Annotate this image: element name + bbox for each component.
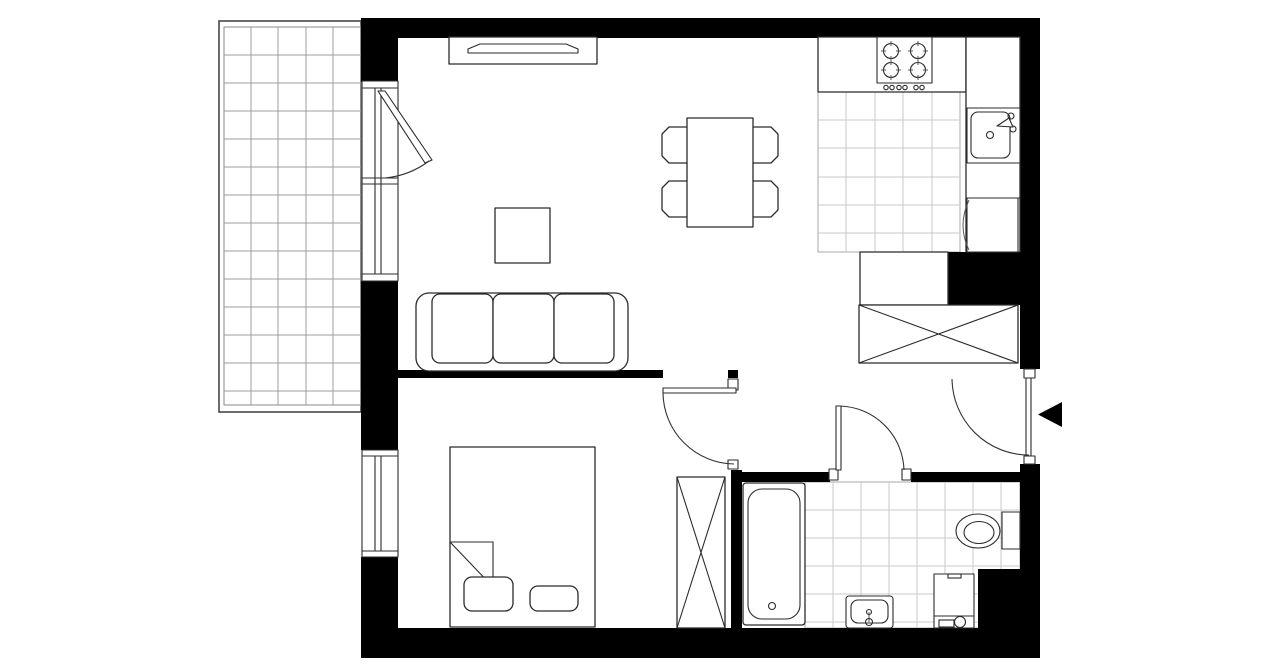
wall-kitchen-block — [948, 252, 1020, 305]
bathroom-door-jamb-left — [829, 469, 838, 480]
floor-plan-page — [0, 0, 1280, 667]
bed-pillow-1 — [464, 577, 513, 611]
bedroom-door-swing — [663, 393, 734, 464]
wall-bedroom-bathroom — [731, 470, 742, 628]
toilet-tank — [1002, 512, 1020, 549]
wall-bathroom-top-left — [742, 472, 830, 482]
fridge — [967, 198, 1018, 252]
entry-door-jamb-top — [1024, 369, 1035, 378]
wall-bottom — [361, 628, 1040, 658]
wall-left-upper — [361, 18, 398, 82]
entry-door-jamb-bottom — [1024, 456, 1035, 464]
entry-door-swing — [952, 379, 1029, 455]
dining-chair-left-top — [662, 127, 688, 163]
kitchen-floor-grid — [818, 92, 960, 252]
dining-chair-left-bottom — [662, 181, 688, 217]
sofa-cushion-1 — [432, 294, 493, 363]
sofa-cushion-2 — [493, 294, 554, 363]
wall-bathroom-top-right — [911, 472, 1020, 482]
sofa-cushion-3 — [554, 294, 614, 363]
dining-chair-right-top — [752, 127, 778, 163]
bedroom-window-frame — [362, 450, 398, 557]
kitchen-floor-border — [818, 92, 960, 252]
bathroom-door-jamb-right — [902, 469, 911, 480]
bathroom-door-swing — [840, 406, 904, 470]
dining-table — [687, 118, 753, 227]
wall-top — [361, 18, 1040, 38]
wall-right-lower — [1020, 464, 1040, 628]
hall-cabinet — [860, 252, 948, 305]
entry-door-leaf — [1026, 378, 1031, 456]
dining-chair-right-bottom — [752, 181, 778, 217]
balcony-outline-outer — [219, 21, 361, 412]
wall-left-middle — [361, 281, 398, 450]
bathroom-door-leaf — [836, 406, 841, 470]
wall-left-lower — [361, 557, 398, 628]
bed-pillow-2 — [530, 586, 578, 611]
coffee-table — [495, 208, 550, 263]
floor-plan-canvas — [0, 0, 1280, 667]
bedroom-door-leaf — [663, 388, 736, 393]
wall-bathroom-corner-block — [978, 569, 1020, 628]
wall-right-upper — [1020, 18, 1040, 369]
stove — [877, 37, 932, 83]
wall-living-bedroom-b — [728, 370, 738, 378]
tv — [468, 44, 578, 53]
entry-arrow — [1038, 402, 1062, 427]
